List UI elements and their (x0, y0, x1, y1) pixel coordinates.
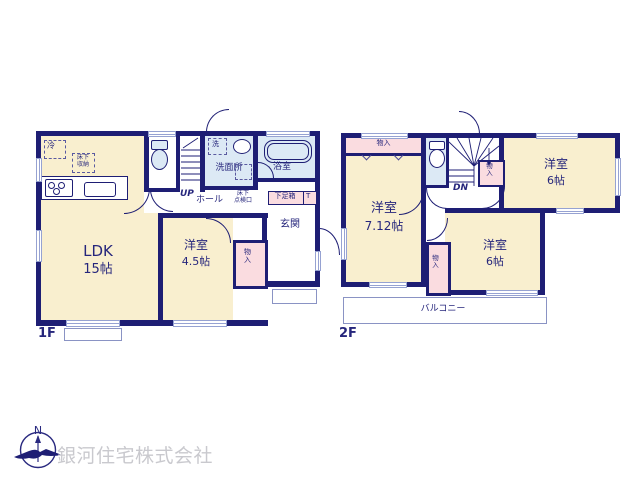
bathtub-inner (267, 143, 309, 160)
window (615, 158, 621, 196)
wall (540, 213, 545, 295)
wall (205, 186, 258, 190)
window (341, 228, 347, 260)
stairs-up-icon (181, 136, 200, 188)
door-arc (124, 188, 150, 214)
window (148, 131, 176, 137)
window (66, 320, 120, 327)
window (556, 208, 584, 214)
room-6a-size: 6帖 (530, 175, 582, 187)
toilet-icon (429, 149, 445, 168)
hall-label: ホール (196, 195, 223, 205)
ldk-room-extension (144, 213, 158, 320)
door-arc (150, 189, 173, 212)
entrance-label: 玄関 (274, 219, 306, 230)
stairs-down-icon (449, 138, 499, 186)
shoe-box-label: 下足箱 (270, 193, 300, 201)
stove-burner (53, 188, 60, 195)
western-room-size: 4.5帖 (170, 256, 222, 268)
door-arc (426, 188, 447, 209)
window (369, 282, 407, 288)
closet-2f-bottom-label: 物 入 (429, 255, 442, 270)
wall (200, 136, 205, 192)
underfloor-hatch-box (235, 164, 252, 180)
room-6b-name: 洋室 (469, 239, 521, 252)
wall (176, 136, 180, 192)
wall (158, 213, 163, 320)
washer-label: 洗 (212, 141, 219, 149)
shutter-box (64, 328, 122, 341)
window (266, 131, 310, 137)
floor-2-plan: 物入 物 入 物 入 DN 洋室 7.12帖 洋室 6帖 洋室 (341, 133, 620, 323)
wall (346, 153, 421, 156)
window (536, 133, 578, 139)
porch (272, 289, 317, 304)
room-6a-name: 洋室 (530, 158, 582, 171)
underfloor-hatch-label: 床下 点検口 (231, 191, 255, 204)
wall (144, 136, 149, 192)
underfloor-storage-label: 床下 収納 (74, 155, 92, 168)
stairs-down-label: DN (453, 183, 468, 193)
entrance-door-arc (319, 228, 340, 255)
door-arc (206, 109, 229, 132)
balcony-label: バルコニー (393, 304, 493, 314)
wall (341, 133, 346, 287)
company-name: 銀河住宅株式会社 (57, 446, 213, 467)
wall (445, 208, 620, 213)
shoe-box-t-label: T (306, 193, 310, 201)
floor-1-tag: 1F (38, 326, 56, 341)
stove-burner (58, 182, 65, 189)
floorplan-canvas: 冷 床下 収納 UP ホール 洗 洗面所 床下 点検口 (0, 0, 640, 480)
sink-icon (233, 139, 251, 154)
floor-2-tag: 2F (339, 326, 357, 341)
wall (158, 213, 268, 218)
bathroom-label: 浴室 (273, 162, 291, 172)
room-712-size: 7.12帖 (354, 220, 414, 233)
wall (258, 178, 320, 182)
toilet-icon (151, 149, 168, 170)
kitchen-sink (84, 182, 116, 197)
closet-1f-label: 物 入 (240, 249, 255, 265)
window (486, 290, 538, 296)
stairs-up-label: UP (180, 189, 194, 199)
window (173, 320, 227, 327)
room-6b-size: 6帖 (469, 256, 521, 268)
floor-1-plan: 冷 床下 収納 UP ホール 洗 洗面所 床下 点検口 (36, 131, 320, 326)
western-room-6a (504, 138, 615, 208)
closet-2f-top-label: 物入 (366, 140, 401, 148)
window (36, 158, 42, 182)
wall (262, 281, 320, 287)
refrigerator-label: 冷 (47, 142, 55, 151)
window (36, 230, 42, 262)
door-arc (459, 111, 480, 134)
ldk-name: LDK (74, 243, 122, 260)
ldk-size: 15帖 (74, 263, 122, 278)
window (361, 133, 408, 139)
